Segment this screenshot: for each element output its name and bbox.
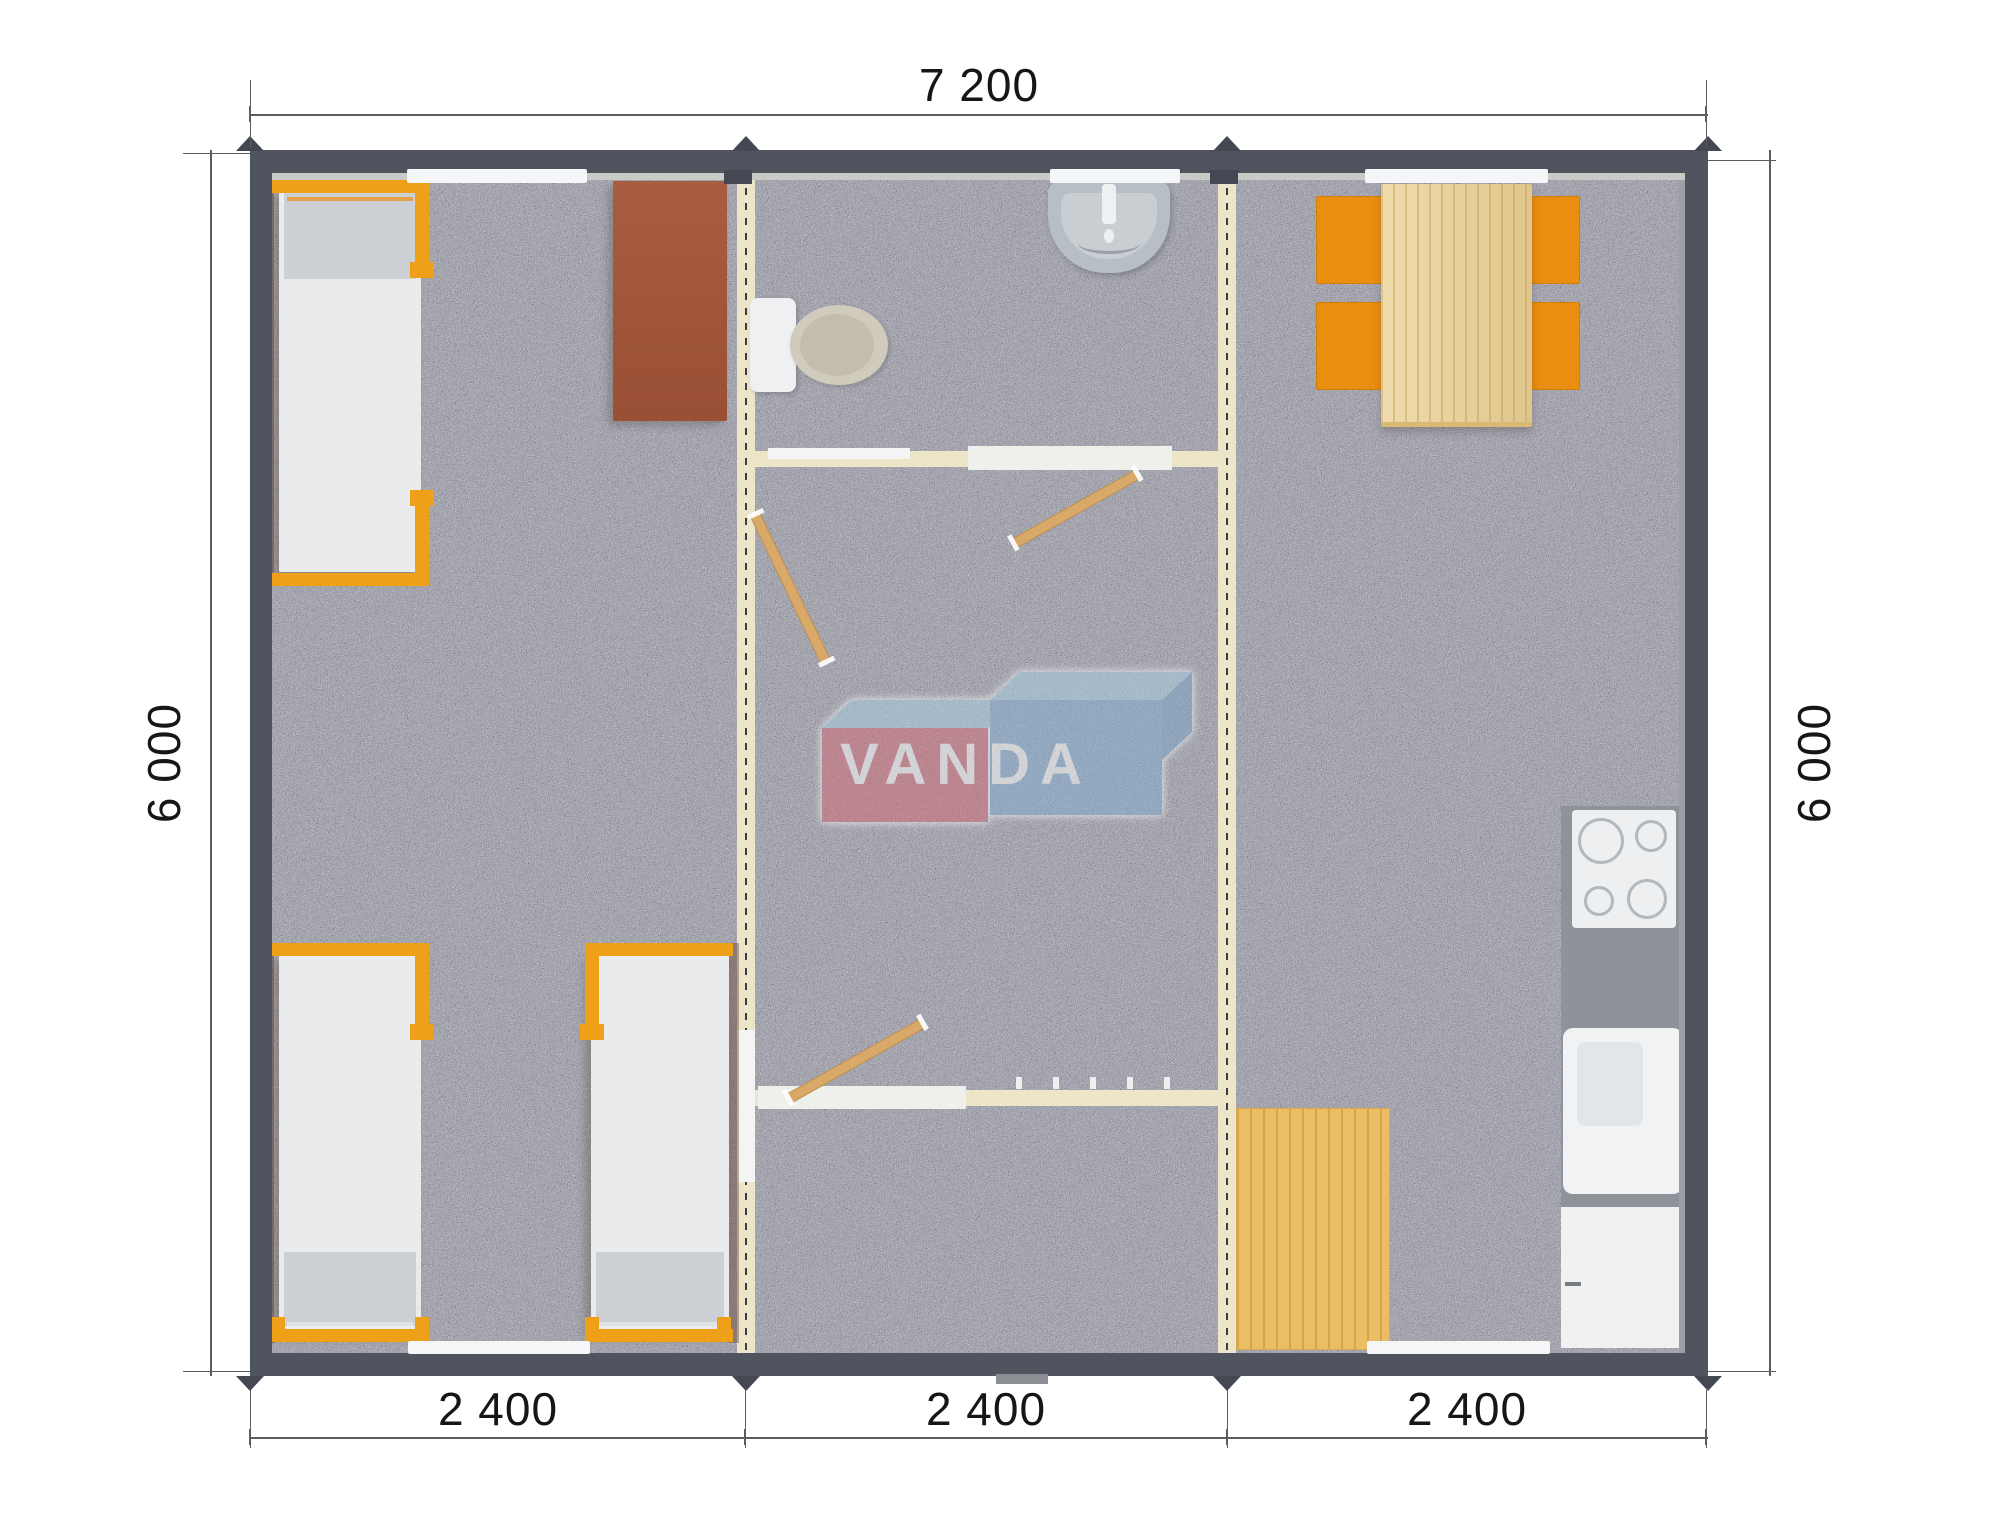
module-post-marker [732, 136, 760, 151]
vanda-watermark-logo: VANDA [810, 670, 1195, 840]
dimension-label-module-2: 2 400 [866, 1386, 1106, 1432]
bed-post-knob [717, 1317, 731, 1329]
dimension-tick [1705, 1429, 1707, 1445]
bed-head-rail [585, 943, 733, 956]
desk [613, 181, 727, 421]
burner-icon [1627, 879, 1667, 919]
extension-line [1708, 1371, 1776, 1372]
module-post-marker [1213, 1376, 1241, 1391]
bed-head-rail [271, 943, 429, 956]
bed-post-knob [410, 1024, 434, 1040]
logo-blue-box-top-face [990, 672, 1192, 700]
bed-post-knob [271, 1317, 285, 1329]
corner-post-marker [1694, 136, 1722, 151]
dimension-tick [249, 106, 251, 122]
exterior-wall-bottom [250, 1353, 1708, 1376]
extension-line [1708, 160, 1776, 161]
dimension-label-depth-left: 6 000 [141, 643, 187, 883]
bed-post-knob [415, 1317, 429, 1329]
coat-hook [1053, 1077, 1059, 1089]
bed-side-post [415, 956, 429, 1030]
module-post-marker [1213, 136, 1241, 151]
coat-hook [1016, 1077, 1022, 1089]
bed-post-knob [410, 490, 434, 506]
dimension-label-module-3: 2 400 [1347, 1386, 1587, 1432]
dimension-line-right [1769, 150, 1771, 1376]
bed-foot-rail [585, 1329, 733, 1342]
basin-drain-line [1078, 233, 1140, 254]
burner-icon [1584, 886, 1614, 916]
bed-pillow [596, 1252, 724, 1326]
dining-chair [1530, 302, 1580, 390]
bed-side-post [585, 956, 599, 1030]
exterior-wall-left [250, 150, 272, 1376]
dimension-tick [1226, 1429, 1228, 1445]
extension-line [183, 1371, 250, 1372]
module-post-marker [732, 1376, 760, 1391]
window-top-dining [1365, 169, 1548, 183]
burner-icon [1578, 818, 1624, 864]
extension-line [183, 153, 250, 154]
coat-hook [1090, 1077, 1096, 1089]
cooktop [1572, 810, 1676, 928]
module-joint-tab [724, 170, 752, 184]
cabinet-handle [1565, 1282, 1581, 1286]
bed-post-knob [580, 1024, 604, 1040]
bed-foot-rail [271, 1329, 429, 1342]
dimension-tick [249, 1429, 251, 1445]
bed-blanket-trim [287, 1322, 413, 1326]
toilet-seat [800, 314, 874, 376]
window-top-bathroom [1050, 169, 1180, 183]
dimension-line-bottom [250, 1437, 1708, 1439]
kitchen-sink-basin [1577, 1042, 1643, 1126]
module-wall-left-door-opening [737, 1030, 755, 1182]
floor-plan-canvas: VANDA [0, 0, 2000, 1537]
bed-post-knob [585, 1317, 599, 1329]
window-bottom-bedroom [408, 1341, 590, 1354]
dining-table [1381, 184, 1532, 427]
logo-wordmark: VANDA [840, 736, 1092, 794]
dimension-label-module-1: 2 400 [378, 1386, 618, 1432]
logo-red-box-top-face [822, 700, 1018, 728]
module-wall-right-joint-line [1226, 173, 1228, 1353]
bed-blanket-trim [599, 1322, 721, 1326]
wood-floor-mat [1236, 1108, 1390, 1350]
window-top-bedroom [407, 169, 587, 183]
wall-liner-right [1679, 180, 1685, 1353]
dimension-tick [744, 1429, 746, 1445]
bed-head-rail [271, 180, 429, 193]
window-bottom-kitchen [1367, 1341, 1550, 1354]
bathroom-door-frame-left [768, 448, 910, 459]
exterior-wall-right [1685, 150, 1708, 1376]
coat-hook [1164, 1077, 1170, 1089]
burner-icon [1635, 820, 1667, 852]
bathroom-door-frame-right [968, 446, 1172, 470]
dimension-line-top [250, 114, 1708, 116]
bed-pillow [284, 1252, 416, 1326]
bed-blanket-trim [287, 197, 413, 201]
coat-hook [1127, 1077, 1133, 1089]
faucet-icon [1102, 184, 1116, 224]
bed-post-knob [410, 262, 434, 278]
dimension-label-overall-width: 7 200 [859, 62, 1099, 108]
dining-chair [1530, 196, 1580, 284]
dimension-tick [1705, 106, 1707, 122]
dimension-label-depth-right: 6 000 [1791, 643, 1837, 883]
dimension-line-left [210, 150, 212, 1376]
bed-pillow [284, 193, 416, 279]
corner-post-marker [236, 1376, 264, 1391]
bed-foot-rail [271, 573, 429, 586]
dining-chair [1316, 196, 1384, 284]
base-cabinet [1561, 1207, 1683, 1348]
bed-side-post [415, 193, 429, 269]
bed-side-post [415, 497, 429, 575]
dining-chair [1316, 302, 1384, 390]
module-joint-tab [1210, 170, 1238, 184]
toilet-bowl [790, 305, 888, 385]
kitchen-sink [1563, 1028, 1683, 1194]
corner-post-marker [1694, 1376, 1722, 1391]
